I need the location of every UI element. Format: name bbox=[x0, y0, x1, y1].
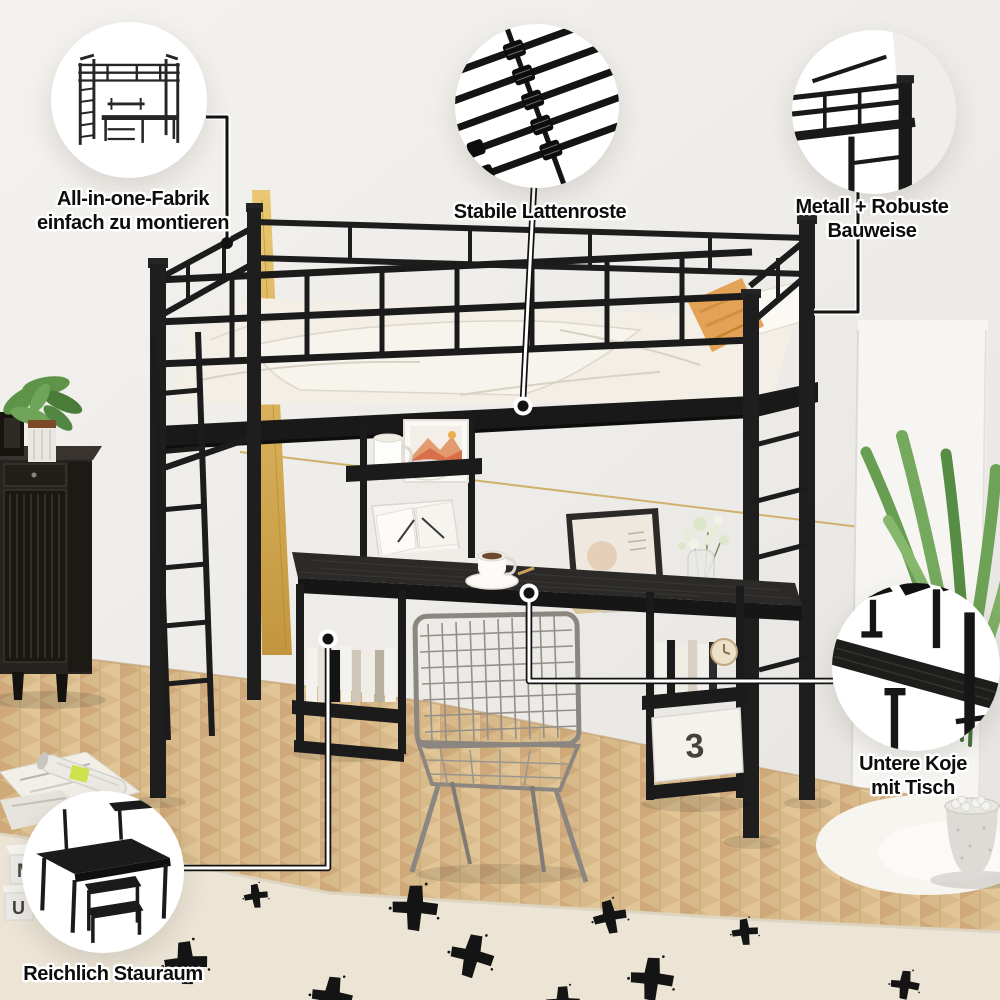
callout-label-slats: Stabile Lattenroste bbox=[454, 200, 626, 224]
annotated-product-image: 3 bbox=[0, 0, 1000, 1000]
books bbox=[306, 646, 396, 702]
loft-bed-line-art-icon bbox=[51, 22, 207, 178]
metal-slats-photo-icon bbox=[455, 24, 619, 188]
callout-label-line: Stabile Lattenroste bbox=[454, 200, 626, 224]
under-bed-desk-photo-icon bbox=[832, 583, 1000, 751]
metal-frame-corner-photo-icon bbox=[792, 30, 956, 194]
sideboard-cabinet bbox=[0, 446, 106, 709]
callout-circle-storage bbox=[22, 791, 184, 953]
callout-label-lower-desk: Untere Koje mit Tisch bbox=[859, 752, 967, 800]
callout-circle-assembly bbox=[51, 22, 207, 178]
callout-label-line: Metall + Robuste bbox=[795, 195, 948, 219]
letter-block-u: U bbox=[12, 898, 25, 918]
callout-label-line: Untere Koje bbox=[859, 752, 967, 776]
storage-box: 3 bbox=[652, 708, 743, 782]
storage-shelf-line-art-icon bbox=[22, 791, 184, 953]
storage-box-label: 3 bbox=[684, 727, 706, 766]
callout-label-assembly: All-in-one-Fabrik einfach zu montieren bbox=[37, 187, 229, 235]
leader-dot-lower-desk bbox=[524, 588, 535, 599]
callout-circle-metal-build bbox=[792, 30, 956, 194]
callout-circle-lower-desk bbox=[832, 583, 1000, 751]
callout-label-line: einfach zu montieren bbox=[37, 211, 229, 235]
leader-dot-storage bbox=[323, 634, 334, 645]
callout-circle-slats bbox=[455, 24, 619, 188]
callout-label-line: mit Tisch bbox=[859, 776, 967, 800]
callout-label-metal-build: Metall + Robuste Bauweise bbox=[795, 195, 948, 243]
callout-label-line: Reichlich Stauraum bbox=[23, 962, 203, 986]
callout-label-line: All-in-one-Fabrik bbox=[37, 187, 229, 211]
leader-dot-assembly bbox=[221, 237, 233, 249]
books bbox=[656, 640, 717, 698]
callout-label-storage: Reichlich Stauraum bbox=[23, 962, 203, 986]
callout-label-line: Bauweise bbox=[795, 219, 948, 243]
leader-dot-slats bbox=[518, 401, 529, 412]
